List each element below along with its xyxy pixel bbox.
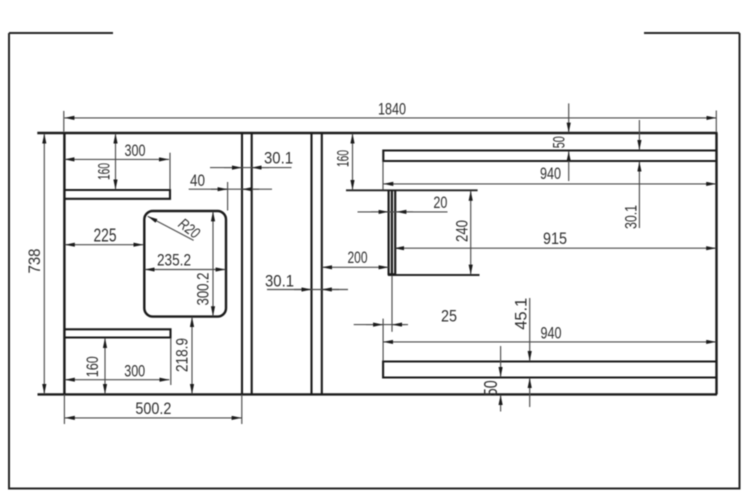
svg-text:300: 300 bbox=[125, 141, 146, 160]
svg-text:45.1: 45.1 bbox=[512, 298, 531, 330]
svg-text:940: 940 bbox=[540, 164, 561, 183]
svg-text:500.2: 500.2 bbox=[135, 399, 171, 418]
svg-text:218.9: 218.9 bbox=[172, 338, 191, 372]
svg-text:200: 200 bbox=[348, 248, 368, 267]
svg-text:300: 300 bbox=[124, 362, 145, 381]
svg-text:235.2: 235.2 bbox=[157, 251, 191, 270]
svg-text:30.1: 30.1 bbox=[621, 205, 640, 229]
svg-text:R20: R20 bbox=[175, 215, 203, 242]
svg-text:240: 240 bbox=[453, 220, 472, 242]
svg-text:940: 940 bbox=[541, 324, 562, 343]
svg-text:50: 50 bbox=[481, 380, 501, 396]
svg-text:160: 160 bbox=[334, 150, 353, 167]
svg-text:30.1: 30.1 bbox=[265, 271, 294, 290]
svg-text:30.1: 30.1 bbox=[264, 149, 293, 168]
svg-text:50: 50 bbox=[550, 136, 569, 148]
svg-text:300.2: 300.2 bbox=[193, 273, 212, 306]
svg-text:160: 160 bbox=[95, 163, 114, 180]
svg-text:225: 225 bbox=[94, 226, 117, 246]
svg-text:738: 738 bbox=[25, 249, 44, 274]
svg-text:20: 20 bbox=[433, 193, 447, 212]
svg-text:915: 915 bbox=[543, 229, 567, 248]
svg-text:1840: 1840 bbox=[378, 100, 406, 119]
svg-text:160: 160 bbox=[83, 356, 102, 377]
svg-text:25: 25 bbox=[441, 307, 457, 326]
svg-text:40: 40 bbox=[190, 171, 205, 190]
